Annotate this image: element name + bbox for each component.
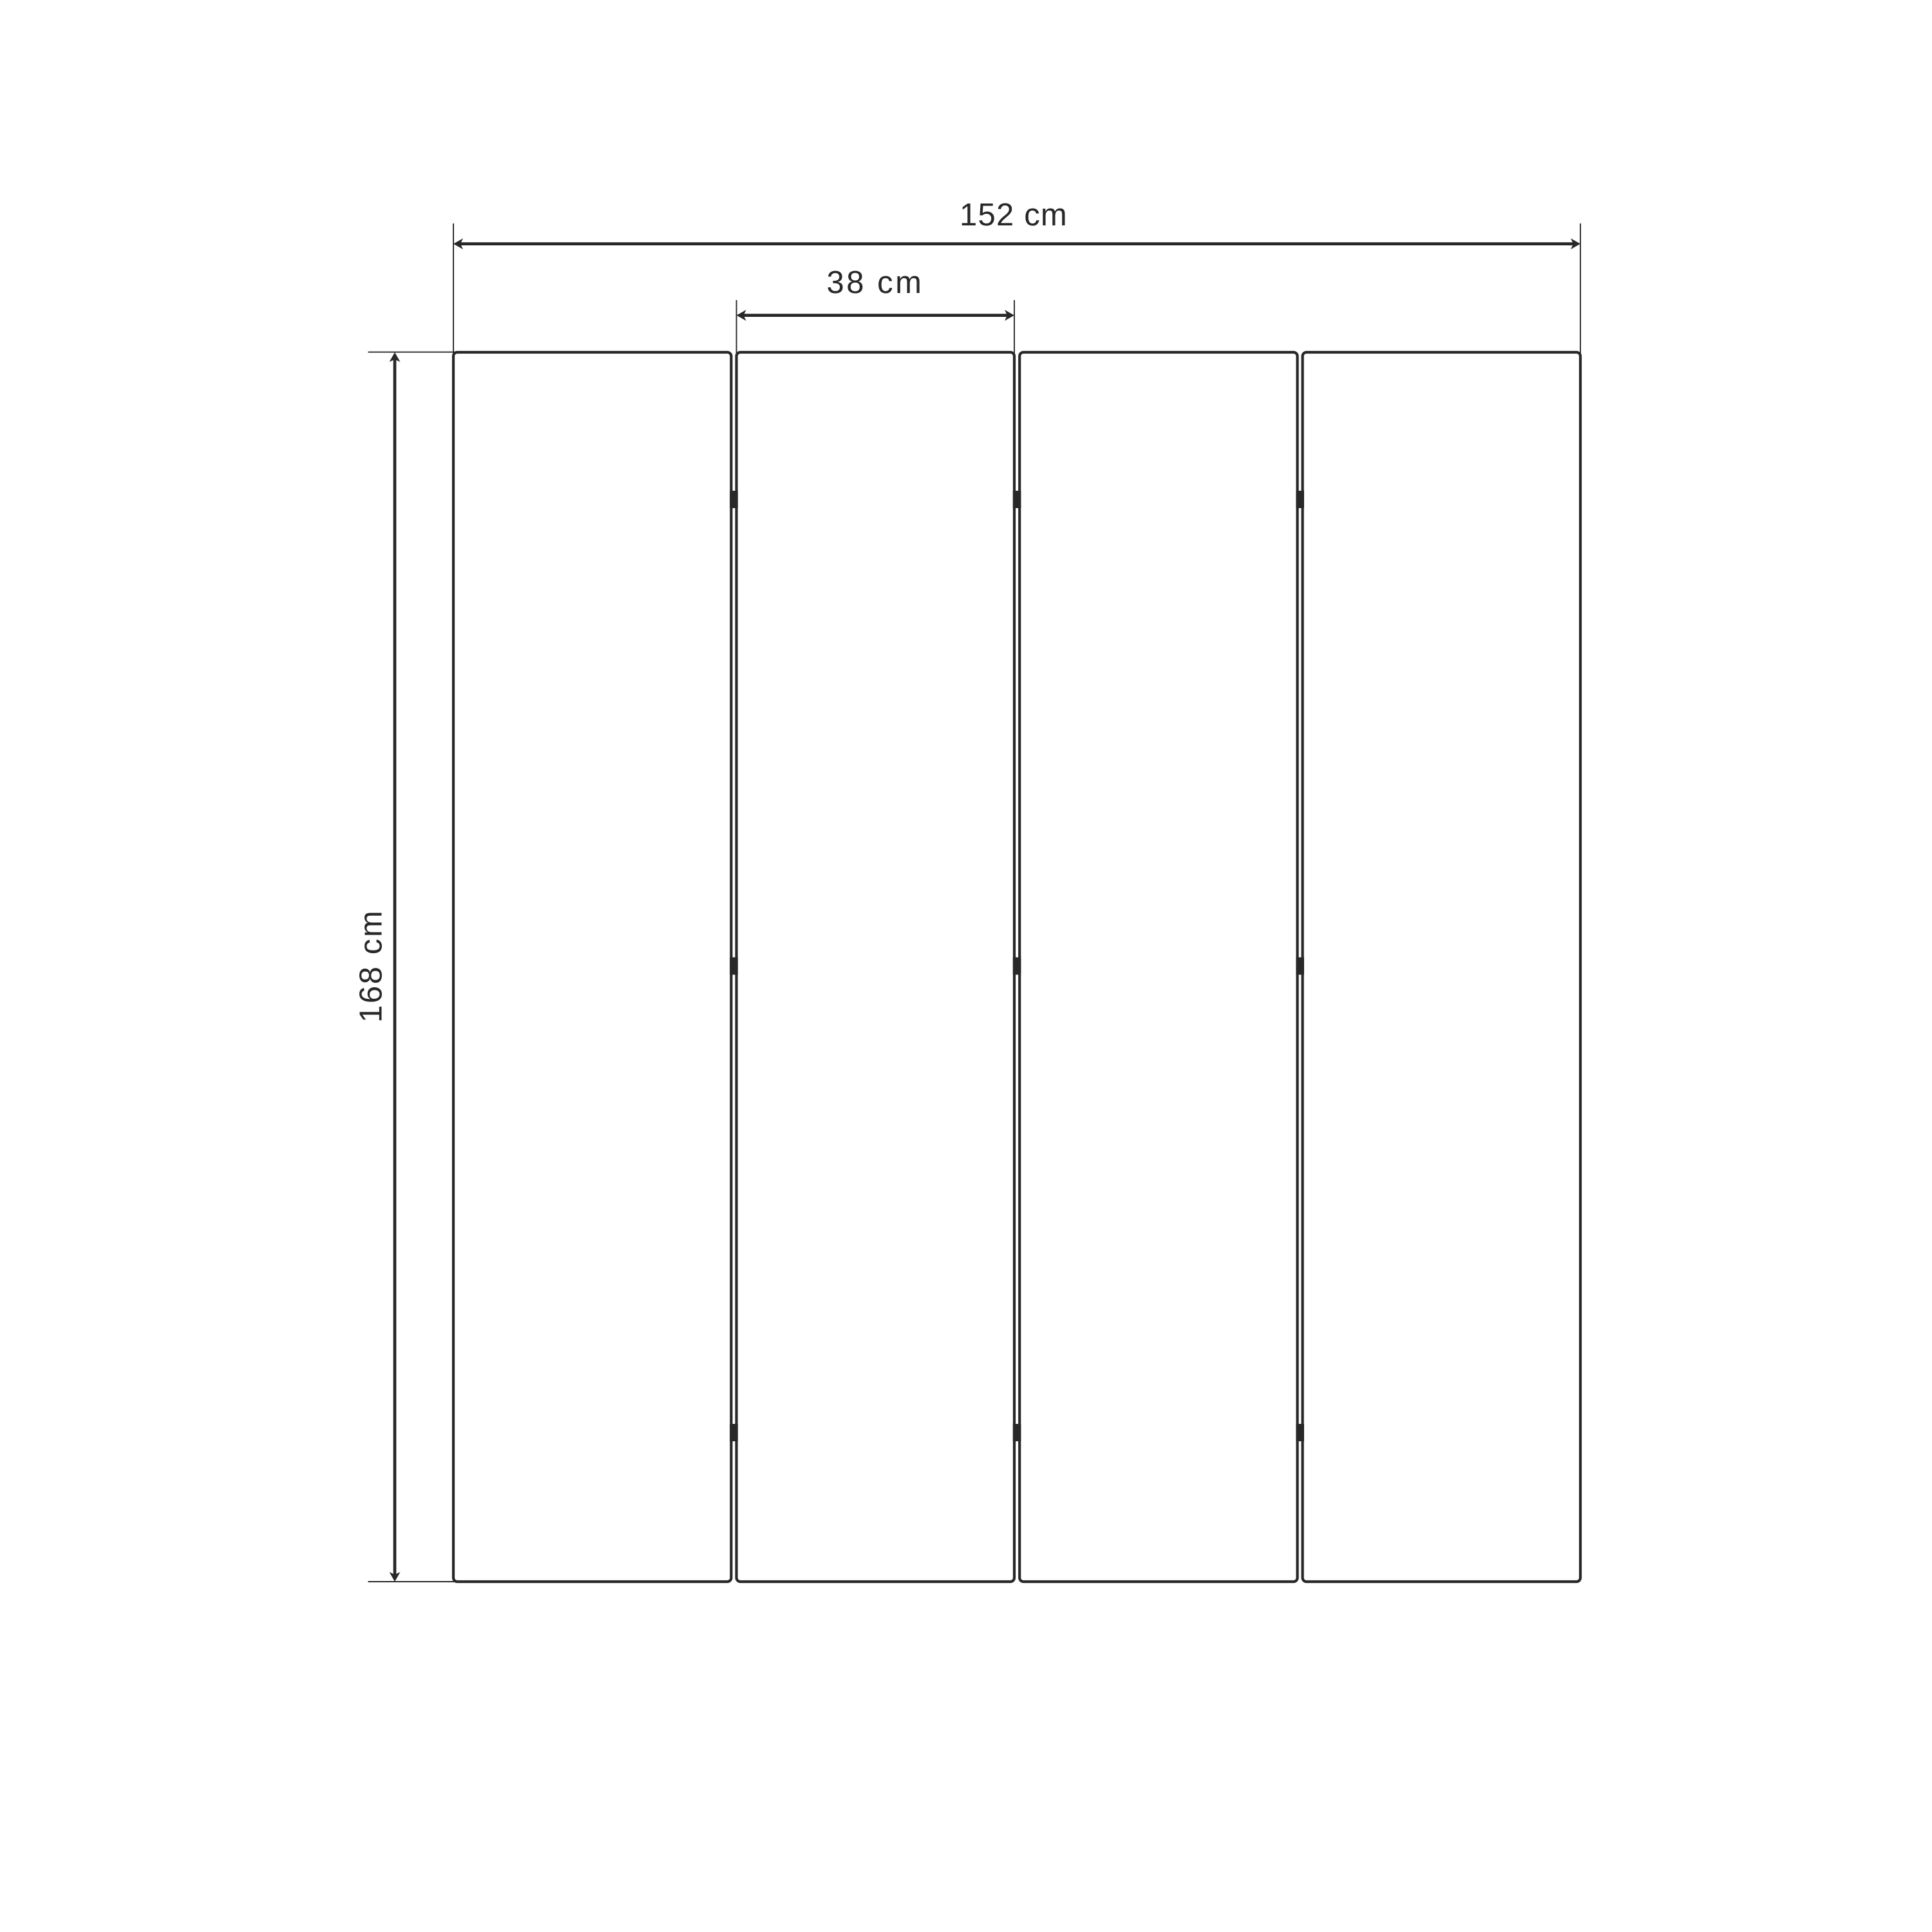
svg-text:38 cm: 38 cm (827, 265, 924, 300)
svg-text:152 cm: 152 cm (960, 198, 1068, 232)
svg-text:168 cm: 168 cm (354, 909, 389, 1023)
